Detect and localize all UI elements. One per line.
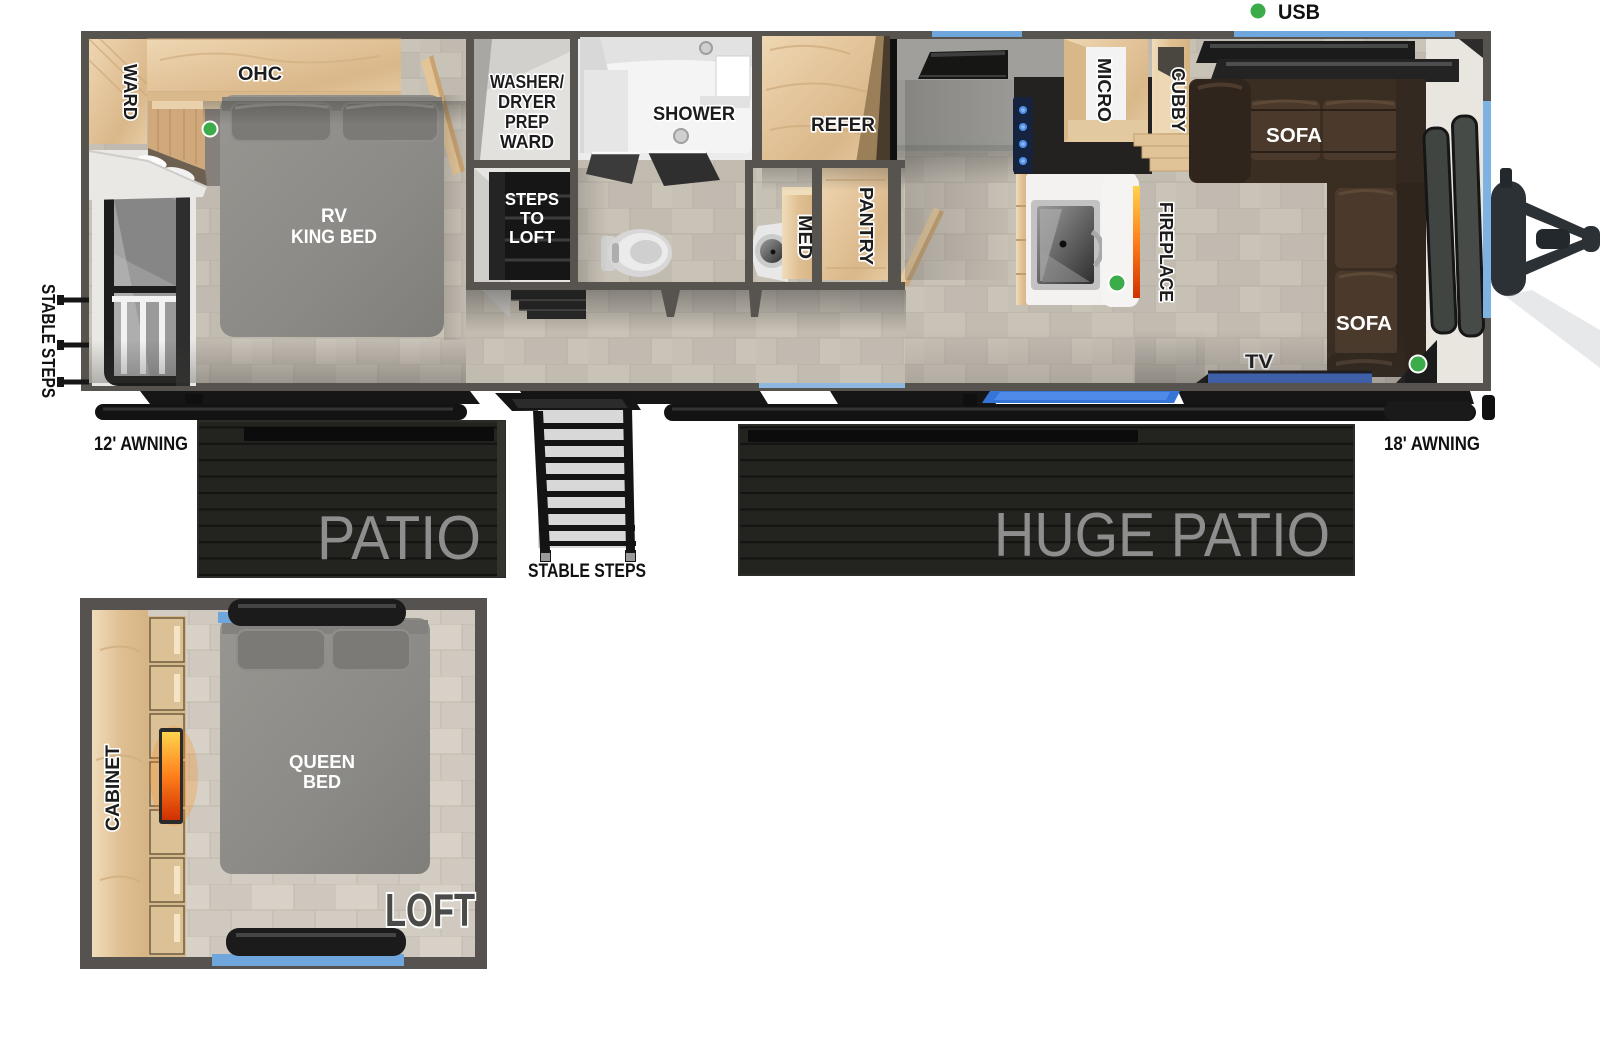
svg-text:BED: BED [303,771,341,792]
svg-text:TO: TO [520,208,544,228]
svg-text:WASHER/: WASHER/ [490,71,564,92]
svg-text:USB: USB [1278,1,1320,24]
svg-text:MICRO: MICRO [1094,58,1114,122]
svg-text:18' AWNING: 18' AWNING [1384,434,1480,455]
svg-text:QUEEN: QUEEN [289,751,355,772]
svg-text:SOFA: SOFA [1266,125,1322,147]
svg-text:RV: RV [321,206,347,227]
svg-text:HUGE PATIO: HUGE PATIO [994,501,1330,570]
svg-text:CABINET: CABINET [103,745,124,831]
svg-text:PREP: PREP [505,111,549,132]
svg-text:STABLE STEPS: STABLE STEPS [528,560,646,582]
svg-text:STEPS: STEPS [505,189,559,209]
svg-text:12' AWNING: 12' AWNING [94,434,188,455]
svg-text:WARD: WARD [500,131,554,152]
svg-text:CUBBY: CUBBY [1168,68,1188,132]
svg-text:KING BED: KING BED [291,227,377,248]
svg-text:DRYER: DRYER [498,91,556,112]
svg-text:FIREPLACE: FIREPLACE [1156,202,1177,302]
svg-text:SHOWER: SHOWER [653,104,735,125]
svg-text:PANTRY: PANTRY [856,187,876,265]
svg-text:OHC: OHC [238,64,282,85]
svg-text:WARD: WARD [120,64,140,120]
svg-text:STABLE STEPS: STABLE STEPS [38,284,58,398]
svg-text:PATIO: PATIO [317,504,481,573]
svg-text:LOFT: LOFT [385,884,475,936]
svg-text:REFER: REFER [811,115,875,136]
svg-text:LOFT: LOFT [509,227,555,247]
